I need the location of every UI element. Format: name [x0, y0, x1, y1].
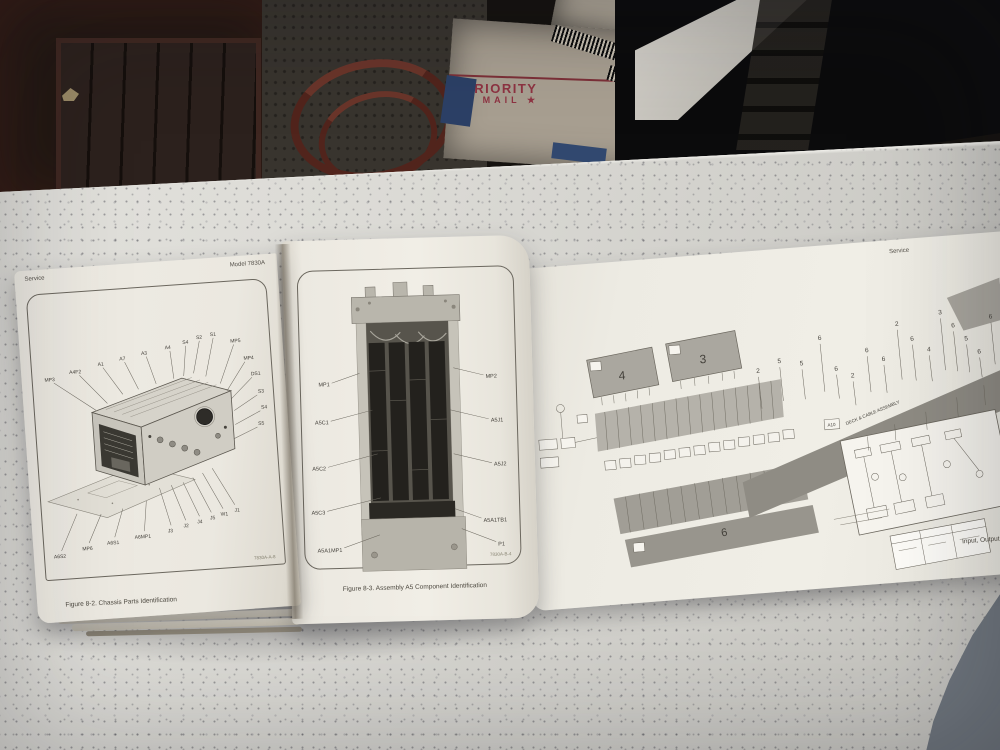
figure-8-3-caption: Figure 8-3. Assembly A5 Component Identi… [291, 580, 538, 594]
svg-text:A5J2: A5J2 [494, 461, 507, 467]
svg-text:J2: J2 [183, 523, 189, 529]
svg-text:P1: P1 [498, 541, 505, 547]
svg-text:6: 6 [951, 322, 956, 329]
svg-text:S4: S4 [261, 404, 268, 410]
manual-left-page: Service Model 7830A [14, 253, 301, 623]
mail-line: ★ MAIL ★ [464, 96, 539, 105]
svg-text:4: 4 [618, 368, 626, 383]
svg-text:A5C1: A5C1 [315, 420, 329, 426]
svg-text:A5C3: A5C3 [311, 510, 325, 516]
svg-text:J3: J3 [168, 528, 174, 534]
usps-blue-label [551, 142, 607, 164]
svg-text:W1: W1 [221, 511, 229, 518]
svg-text:MP1: MP1 [318, 382, 329, 388]
svg-text:A6S2: A6S2 [54, 554, 67, 561]
header-model: Model 7830A [230, 260, 266, 268]
schematic-subcircuit [840, 410, 1000, 536]
foldout-header-service: Service [889, 248, 909, 256]
svg-text:A5C2: A5C2 [312, 466, 326, 472]
svg-text:3: 3 [938, 309, 943, 316]
svg-text:A6MP1: A6MP1 [134, 534, 151, 541]
svg-text:MP3: MP3 [44, 377, 55, 384]
svg-text:A1: A1 [97, 362, 104, 368]
a5-top-bracket [351, 281, 460, 324]
svg-text:6: 6 [818, 335, 823, 342]
svg-text:MP2: MP2 [485, 374, 496, 380]
svg-text:A4F2: A4F2 [69, 369, 82, 376]
usps-blue-label [440, 75, 476, 127]
pallet-slats [56, 38, 261, 205]
svg-text:S4: S4 [182, 340, 189, 346]
svg-text:S1: S1 [210, 332, 217, 338]
svg-text:2: 2 [895, 321, 900, 328]
svg-text:DS1: DS1 [251, 371, 261, 378]
figure-code: 7830A-B-4 [490, 551, 512, 557]
svg-text:A5J1: A5J1 [491, 417, 504, 423]
svg-text:A5A1TB1: A5A1TB1 [483, 517, 507, 524]
chassis-body [90, 375, 237, 489]
svg-text:A6S1: A6S1 [107, 540, 120, 547]
svg-text:2: 2 [756, 368, 761, 375]
schematic-block-3: 3 [665, 330, 743, 390]
assembly-a5-photo: MP1 A5C1 A5C2 A5C3 A5A1MP1 MP2 A5J1 A5J2… [299, 267, 520, 578]
svg-text:MP6: MP6 [82, 546, 93, 553]
figure-8-2-caption: Figure 8-2. Chassis Parts Identification [65, 596, 177, 608]
schematic-diagram: 4 3 [515, 254, 1000, 601]
svg-text:MP5: MP5 [230, 338, 241, 345]
header-service: Service [24, 275, 44, 282]
svg-text:6: 6 [865, 347, 870, 354]
svg-text:2: 2 [851, 372, 856, 379]
svg-text:J4: J4 [197, 519, 203, 525]
svg-text:5: 5 [964, 335, 969, 342]
schematic-block-4: 4 [586, 347, 660, 406]
svg-text:4: 4 [927, 346, 932, 353]
manual-middle-page: MP1 A5C1 A5C2 A5C3 A5A1MP1 MP2 A5J1 A5J2… [282, 235, 540, 625]
wooden-pallet [0, 0, 278, 205]
svg-text:A10: A10 [827, 422, 836, 428]
svg-text:6: 6 [910, 336, 915, 343]
svg-text:6: 6 [834, 366, 839, 373]
svg-text:J5: J5 [210, 515, 216, 521]
svg-text:A7: A7 [119, 356, 126, 362]
svg-text:J1: J1 [234, 507, 240, 513]
svg-text:S2: S2 [196, 335, 203, 341]
screw [371, 552, 377, 558]
svg-text:6: 6 [977, 348, 982, 355]
foldout-schematic-page: Service 4 3 [507, 231, 1000, 611]
svg-text:3: 3 [699, 352, 707, 367]
a5-connector-block [369, 501, 455, 519]
chassis-drawing: MP3 A4F2 A1 A7 A3 A4 S4 S2 S1 MP5 MP4 DS… [28, 280, 284, 596]
svg-text:5: 5 [777, 358, 782, 365]
svg-text:A3: A3 [141, 351, 148, 357]
svg-text:A5A1MP1: A5A1MP1 [318, 548, 343, 555]
schematic-left-components [536, 402, 599, 468]
svg-text:MP4: MP4 [243, 355, 254, 362]
workshop-photo-scene: PRIORITY ★ MAIL ★ Service 4 [0, 0, 1000, 750]
svg-text:6: 6 [881, 356, 886, 363]
a5-base-plate [361, 516, 466, 571]
svg-text:5: 5 [800, 360, 805, 367]
svg-text:S3: S3 [258, 388, 265, 394]
svg-text:A4: A4 [164, 345, 171, 351]
screw [451, 544, 457, 550]
svg-text:S5: S5 [258, 421, 265, 427]
